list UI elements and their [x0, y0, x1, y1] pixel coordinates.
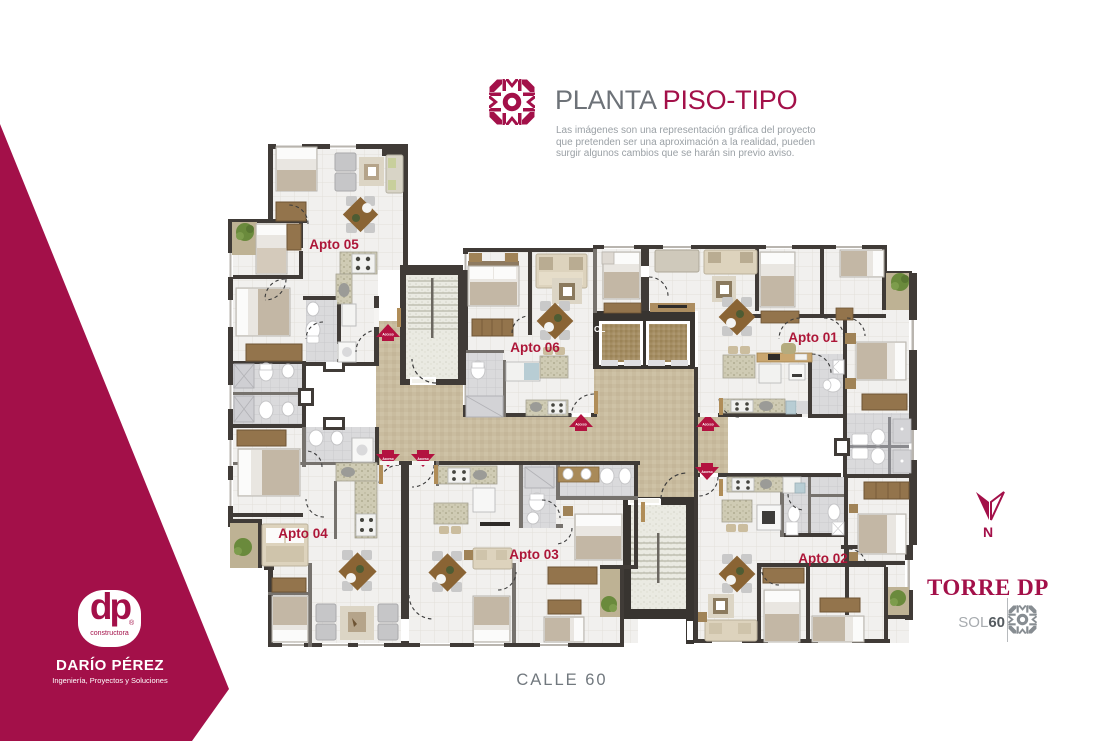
- svg-text:CL: CL: [594, 324, 605, 334]
- svg-text:Apto 06: Apto 06: [510, 340, 560, 355]
- svg-text:Acceso: Acceso: [382, 333, 393, 337]
- svg-text:Apto 02: Apto 02: [798, 551, 848, 566]
- svg-text:Apto 05: Apto 05: [309, 237, 359, 252]
- svg-text:Acceso: Acceso: [382, 457, 393, 461]
- svg-text:Apto 03: Apto 03: [509, 547, 559, 562]
- svg-text:Apto 04: Apto 04: [278, 526, 328, 541]
- svg-text:Apto 01: Apto 01: [788, 330, 838, 345]
